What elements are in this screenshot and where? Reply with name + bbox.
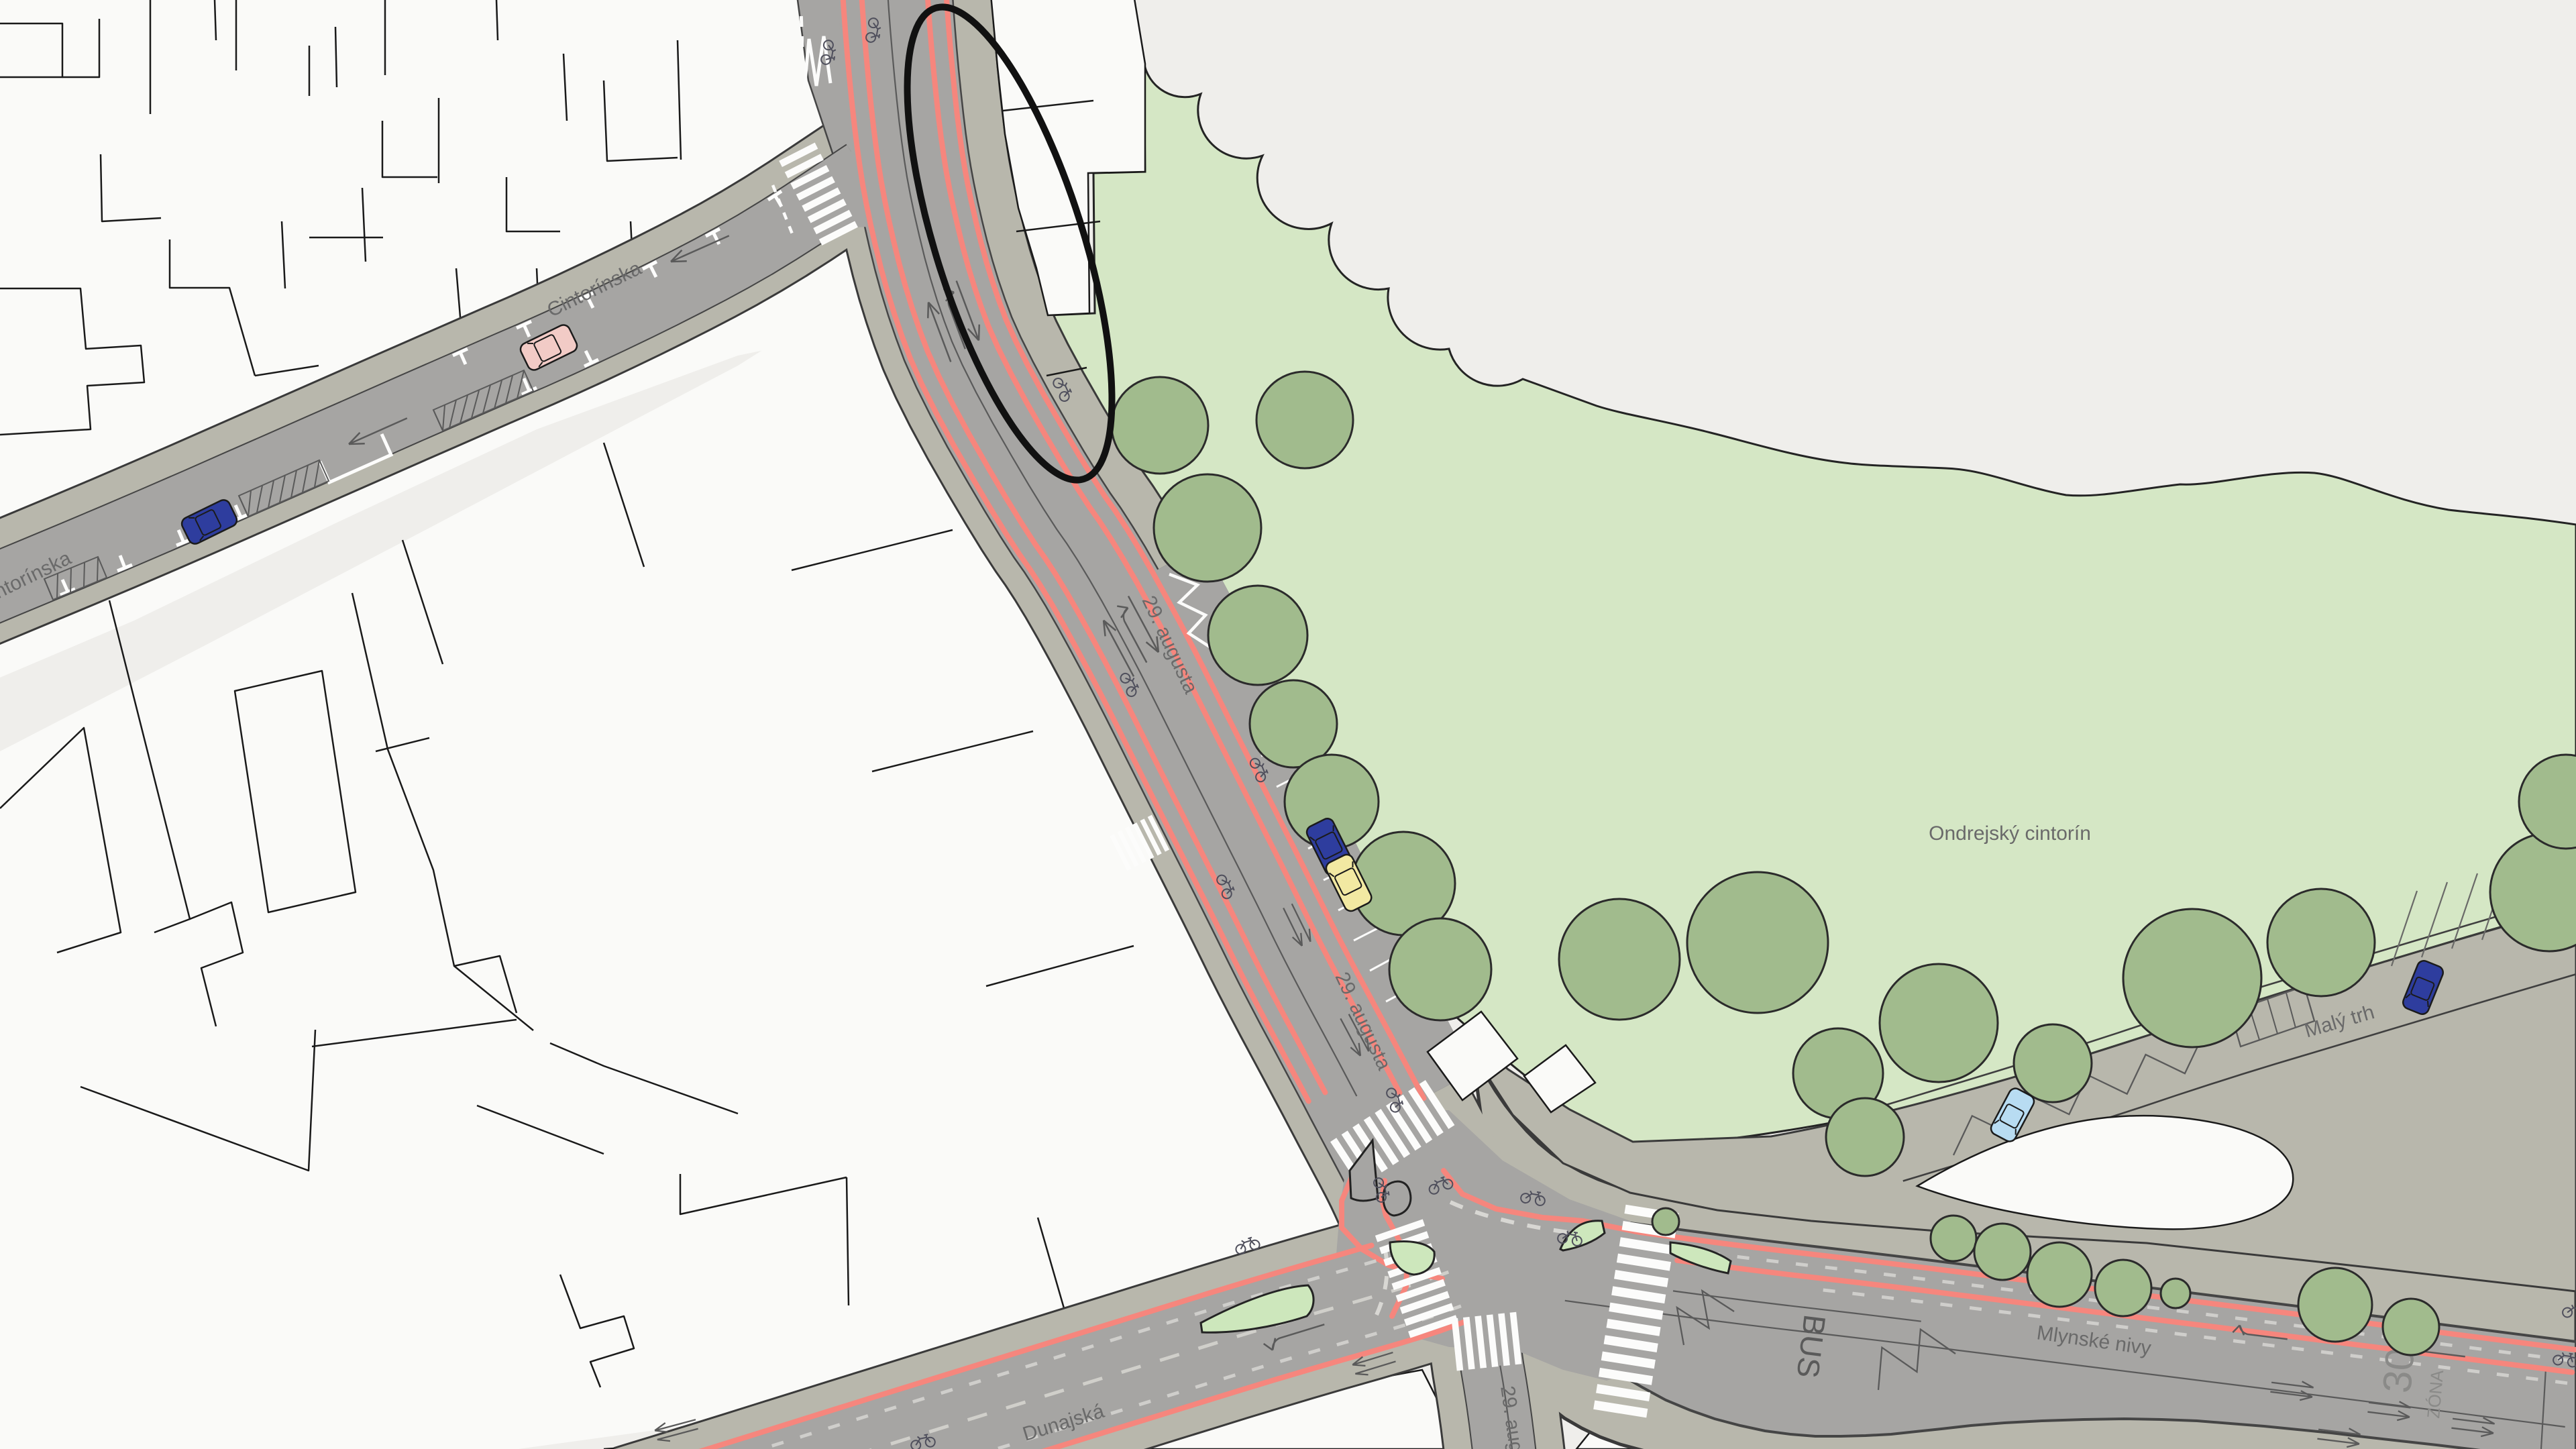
svg-text:Ondrejský cintorín: Ondrejský cintorín: [1929, 822, 2091, 845]
svg-text:ZÓNA: ZÓNA: [2423, 1368, 2447, 1419]
